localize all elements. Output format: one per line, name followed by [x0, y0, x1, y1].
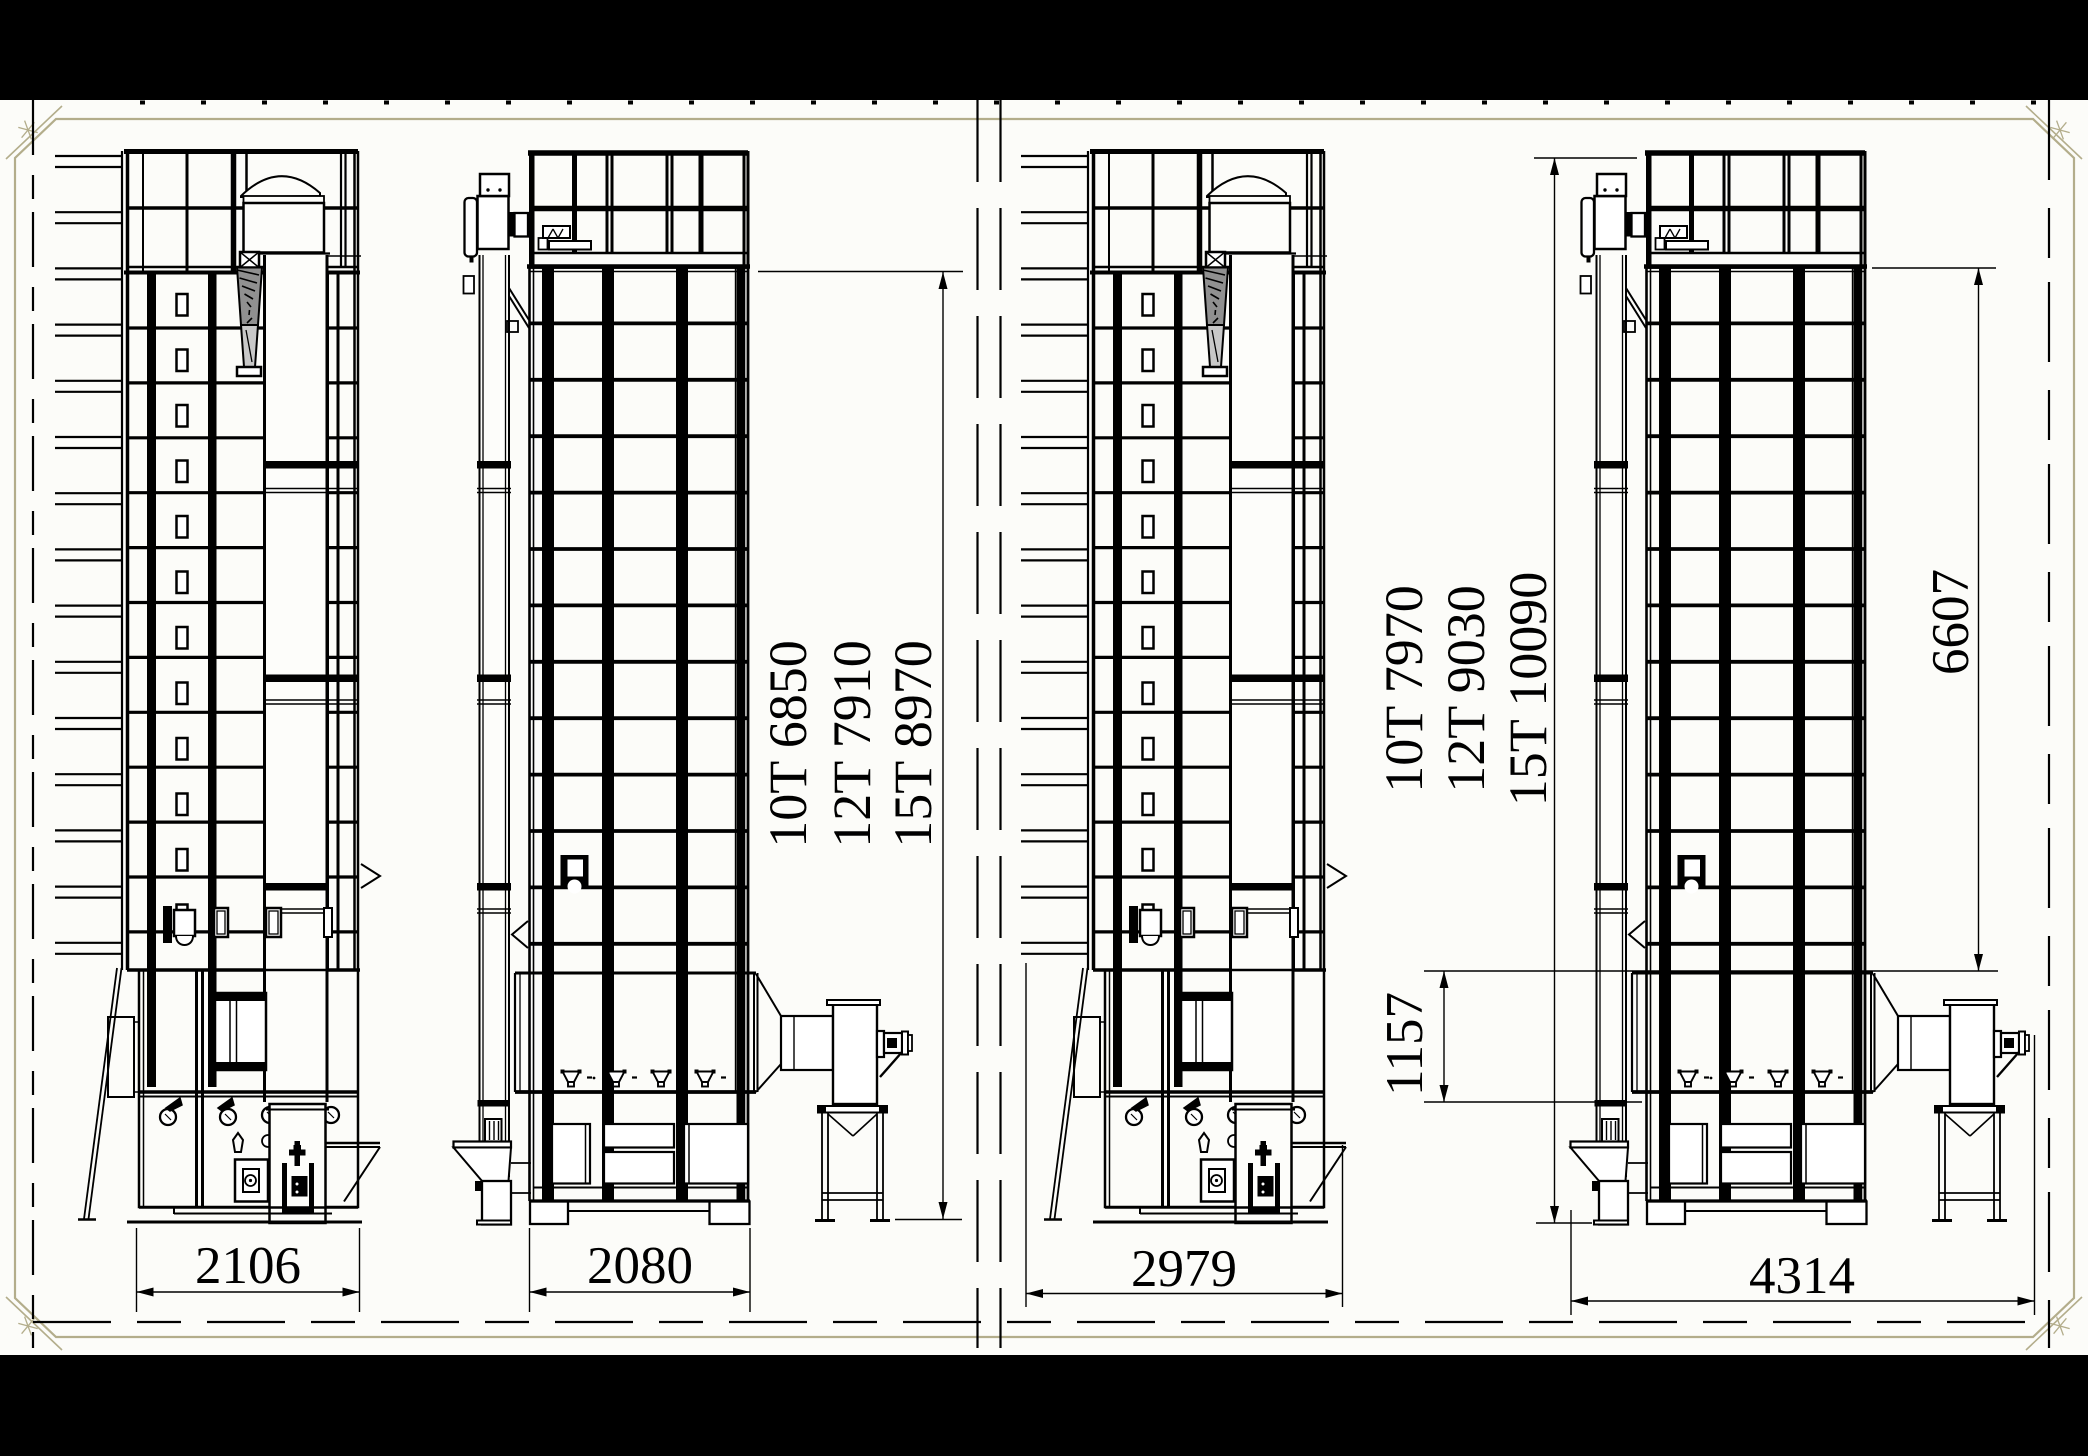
svg-text:4314: 4314 — [1749, 1247, 1855, 1305]
svg-text:10T 6850: 10T 6850 — [758, 640, 818, 848]
svg-text:2979: 2979 — [1131, 1240, 1237, 1298]
svg-text:6607: 6607 — [1922, 569, 1980, 675]
svg-text:12T 9030: 12T 9030 — [1436, 585, 1496, 793]
svg-text:15T 8970: 15T 8970 — [883, 640, 943, 848]
svg-text:10T 7970: 10T 7970 — [1374, 585, 1434, 793]
svg-text:15T 10090: 15T 10090 — [1498, 572, 1558, 807]
svg-text:12T 7910: 12T 7910 — [822, 640, 882, 848]
svg-text:2080: 2080 — [587, 1237, 693, 1295]
svg-text:2106: 2106 — [195, 1237, 301, 1295]
svg-text:1157: 1157 — [1376, 992, 1434, 1096]
